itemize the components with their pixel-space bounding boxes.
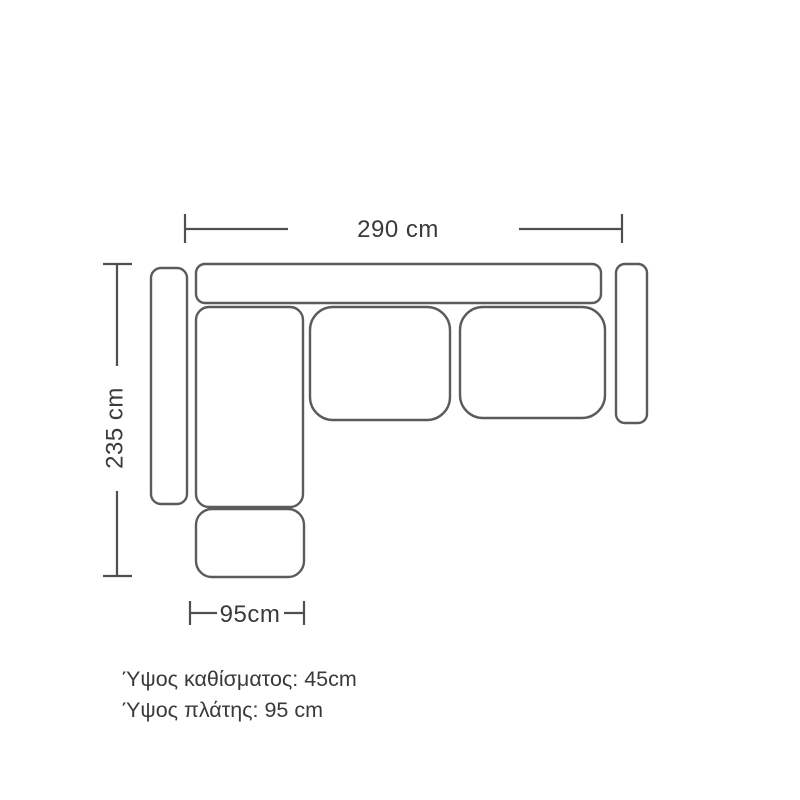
ottoman xyxy=(196,509,304,577)
right-armrest xyxy=(616,264,647,423)
note-seat-height: Ύψος καθίσματος: 45cm xyxy=(122,667,357,691)
notes: Ύψος καθίσματος: 45cm Ύψος πλάτης: 95 cm xyxy=(122,667,357,722)
chaise-width-dimension-label: 95cm xyxy=(220,601,281,628)
back-cushion xyxy=(196,264,601,303)
chaise-width-dimension: 95cm xyxy=(190,601,304,628)
depth-dimension: 235 cm xyxy=(101,264,132,576)
width-dimension-label: 290 cm xyxy=(357,216,439,243)
chaise-seat xyxy=(196,307,303,507)
left-armrest xyxy=(151,268,187,504)
sofa-parts xyxy=(151,264,647,577)
right-seat-cushion xyxy=(460,307,605,418)
sofa-dimension-diagram: 290 cm 235 cm 95cm Ύψος καθίσματος: 45cm… xyxy=(0,0,800,800)
note-back-height: Ύψος πλάτης: 95 cm xyxy=(122,698,323,722)
depth-dimension-label: 235 cm xyxy=(101,387,128,469)
middle-seat-cushion xyxy=(310,307,450,420)
diagram-canvas: 290 cm 235 cm 95cm Ύψος καθίσματος: 45cm… xyxy=(0,0,800,800)
width-dimension: 290 cm xyxy=(185,214,622,243)
